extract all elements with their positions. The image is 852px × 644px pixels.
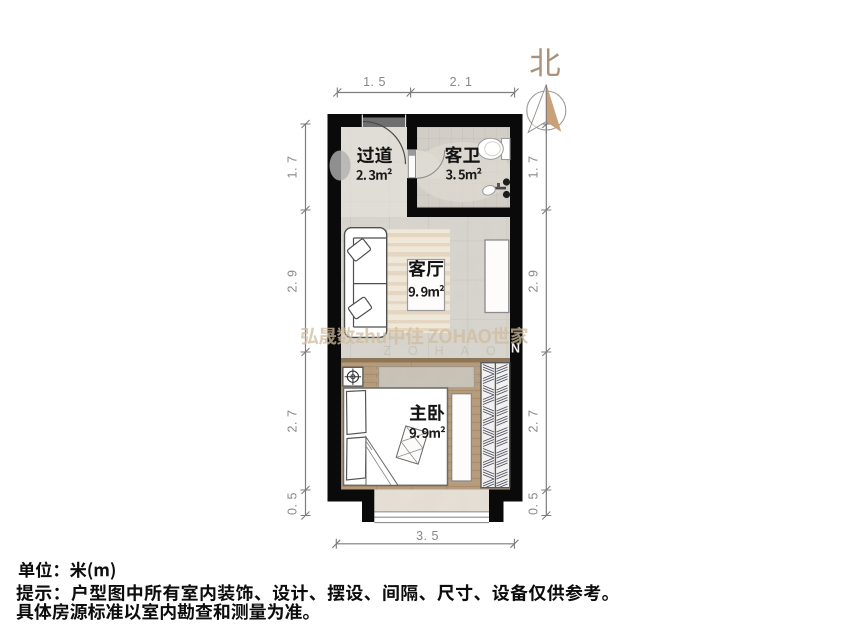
- svg-text:1. 7: 1. 7: [527, 156, 541, 179]
- svg-text:2. 9: 2. 9: [527, 270, 541, 293]
- svg-text:1. 7: 1. 7: [286, 156, 300, 179]
- svg-text:2. 7: 2. 7: [286, 410, 300, 433]
- svg-text:1. 5: 1. 5: [363, 75, 386, 89]
- svg-text:2. 7: 2. 7: [527, 410, 541, 433]
- svg-text:ZOHAO: ZOHAO: [383, 344, 512, 358]
- svg-text:2. 1: 2. 1: [450, 75, 473, 89]
- svg-text:0. 5: 0. 5: [527, 492, 541, 515]
- svg-text:3. 5: 3. 5: [416, 529, 439, 543]
- svg-text:N: N: [511, 342, 520, 356]
- svg-text:0. 5: 0. 5: [286, 492, 300, 515]
- svg-text:2. 9: 2. 9: [286, 270, 300, 293]
